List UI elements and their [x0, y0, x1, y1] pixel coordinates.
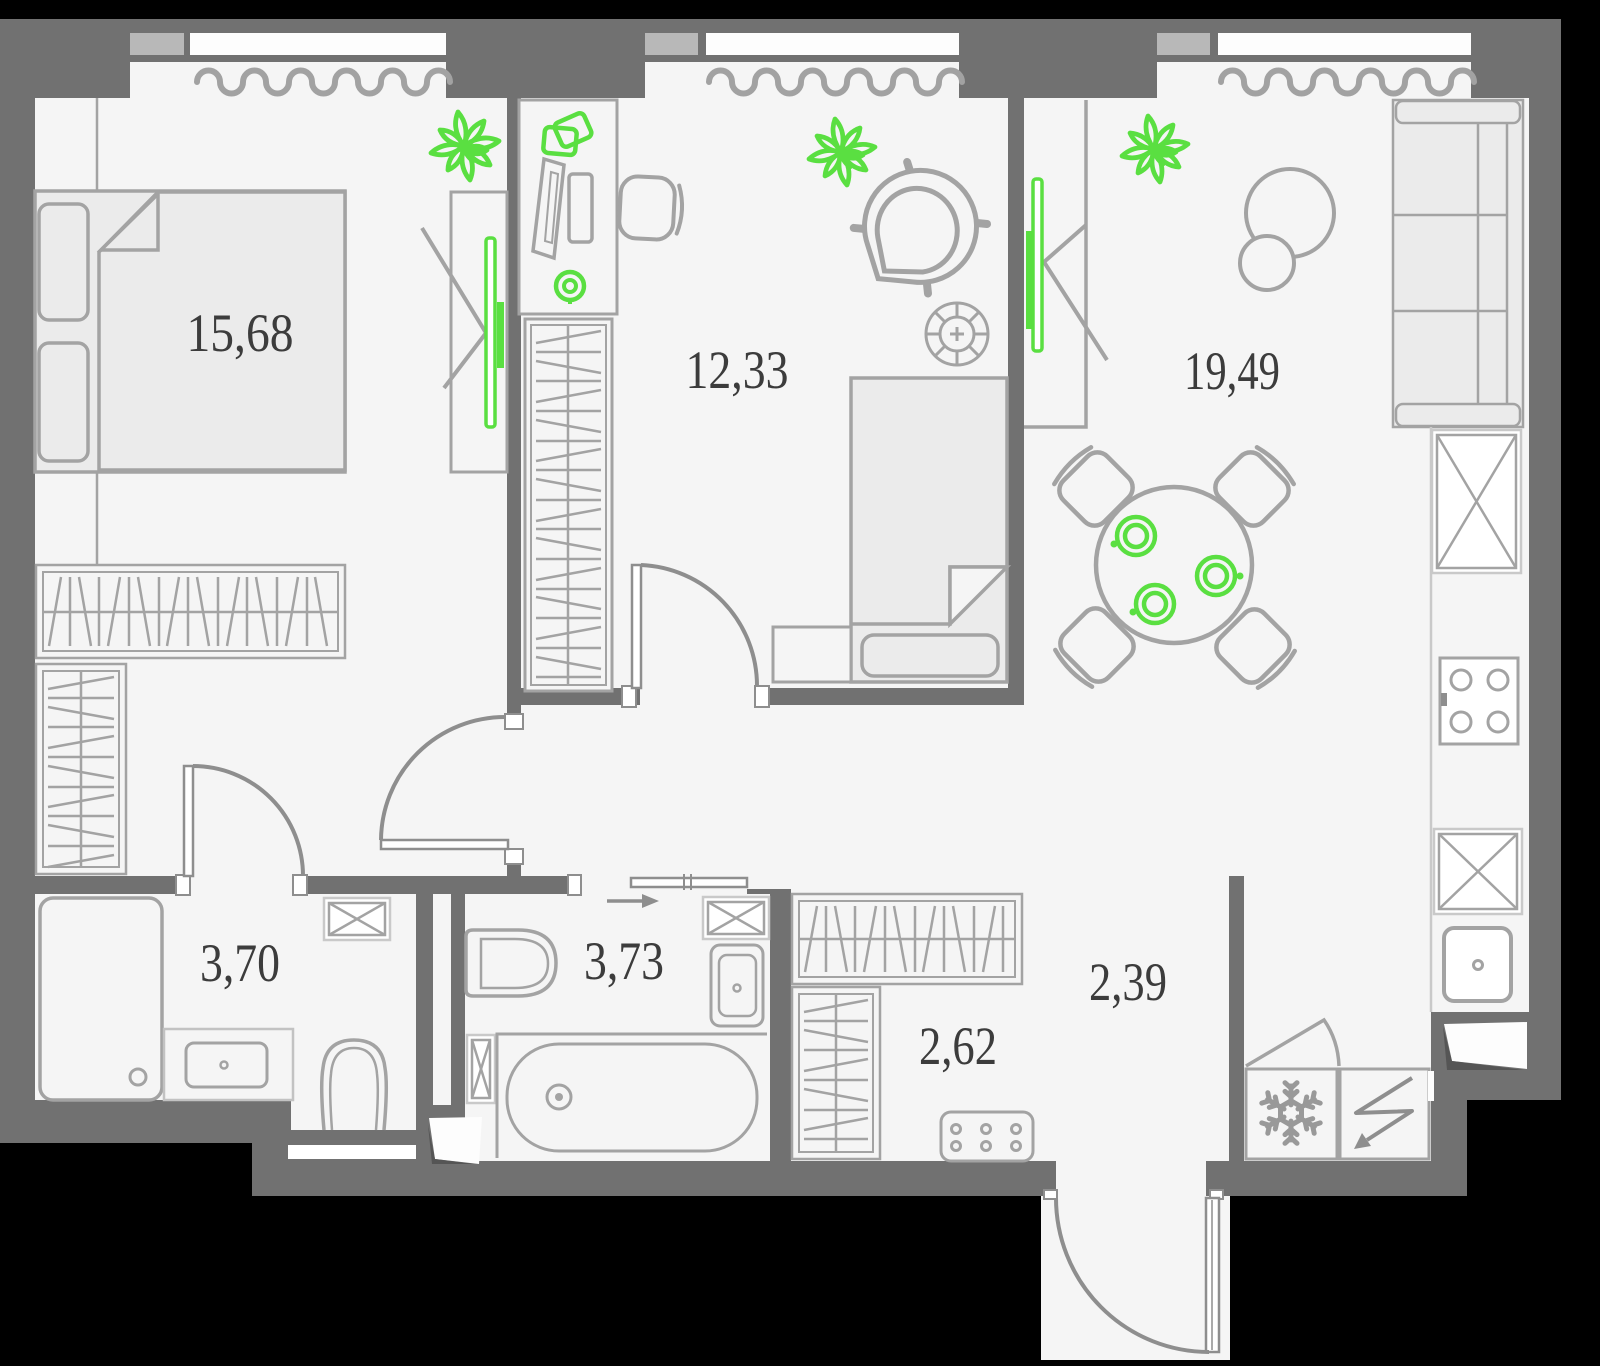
svg-text:2,62: 2,62	[919, 1016, 997, 1076]
svg-text:15,68: 15,68	[187, 303, 294, 363]
svg-text:3,70: 3,70	[200, 933, 280, 993]
svg-text:2,39: 2,39	[1089, 952, 1167, 1012]
svg-text:3,73: 3,73	[584, 931, 664, 991]
svg-text:12,33: 12,33	[686, 340, 789, 400]
svg-text:19,49: 19,49	[1184, 341, 1280, 401]
